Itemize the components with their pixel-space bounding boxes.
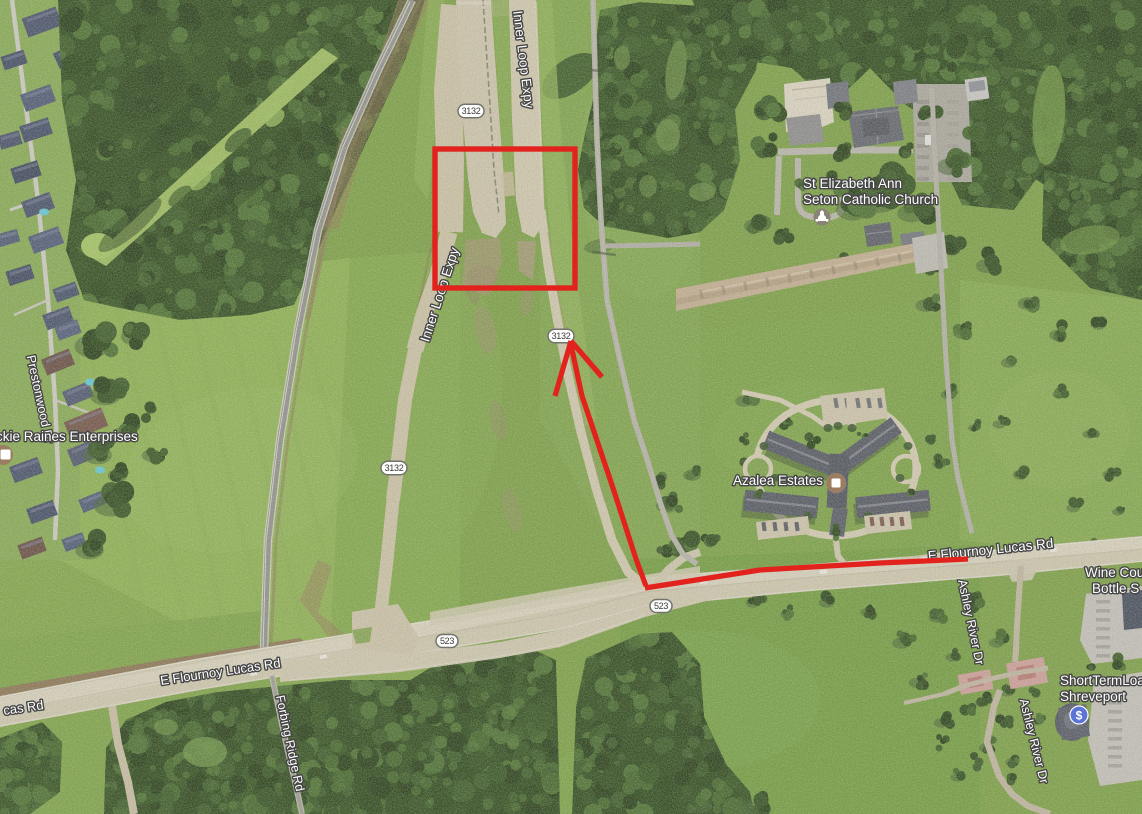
svg-text:3132: 3132 [385, 463, 404, 473]
svg-text:3132: 3132 [552, 331, 571, 341]
svg-text:Wine Cou: Wine Cou [1085, 565, 1142, 580]
svg-text:ckie Raines Enterprises: ckie Raines Enterprises [0, 429, 138, 444]
svg-text:Seton Catholic Church: Seton Catholic Church [803, 192, 938, 207]
svg-text:ShortTermLoa: ShortTermLoa [1060, 673, 1142, 688]
svg-text:Shreveport: Shreveport [1060, 689, 1126, 704]
svg-text:3132: 3132 [462, 106, 481, 116]
svg-text:Bottle S: Bottle S [1092, 581, 1139, 596]
svg-text:St Elizabeth Ann: St Elizabeth Ann [803, 176, 902, 191]
svg-text:$: $ [1076, 709, 1083, 723]
svg-text:Azalea Estates: Azalea Estates [733, 473, 823, 488]
svg-text:523: 523 [440, 636, 454, 646]
svg-text:523: 523 [654, 601, 668, 611]
